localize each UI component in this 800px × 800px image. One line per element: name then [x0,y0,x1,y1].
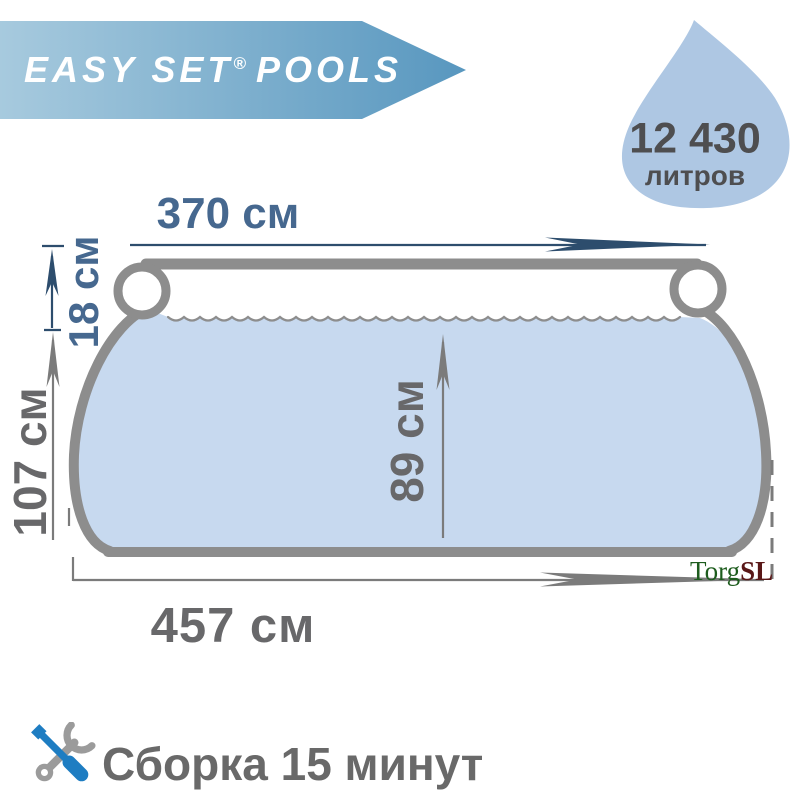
watermark: TorgSL [690,556,773,587]
volume-unit: литров [645,160,745,192]
dim-top-width-label: 370 см [157,189,300,239]
volume-value: 12 430 [629,115,761,164]
product-card: EASY SET®POOLS 12 430 литров 370 см 18 с… [0,0,800,800]
watermark-sl: SL [740,556,773,586]
watermark-torg: Torg [690,556,740,586]
brand-banner: EASY SET®POOLS [24,49,402,91]
dim-water-depth-label: 89 см [380,379,434,503]
tools-icon [28,722,96,788]
dim-total-height-label: 107 см [3,387,57,536]
dim-ring-height-label: 18 см [60,236,108,349]
dim-base-width-label: 457 см [151,598,316,654]
registered-trademark-icon: ® [233,54,246,73]
pool-right-ring [674,265,722,313]
brand-suffix-text: POOLS [256,49,402,90]
pool-left-ring [118,267,166,315]
brand-text: EASY SET [24,49,233,90]
assembly-note: Сборка 15 минут [102,737,483,791]
